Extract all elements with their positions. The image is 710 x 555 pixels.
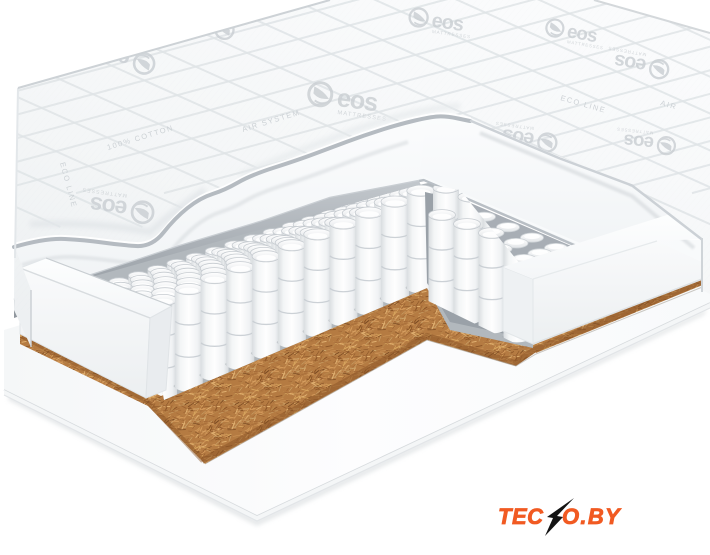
svg-text:O.BY: O.BY (562, 504, 622, 529)
svg-text:TEC: TEC (498, 504, 544, 529)
